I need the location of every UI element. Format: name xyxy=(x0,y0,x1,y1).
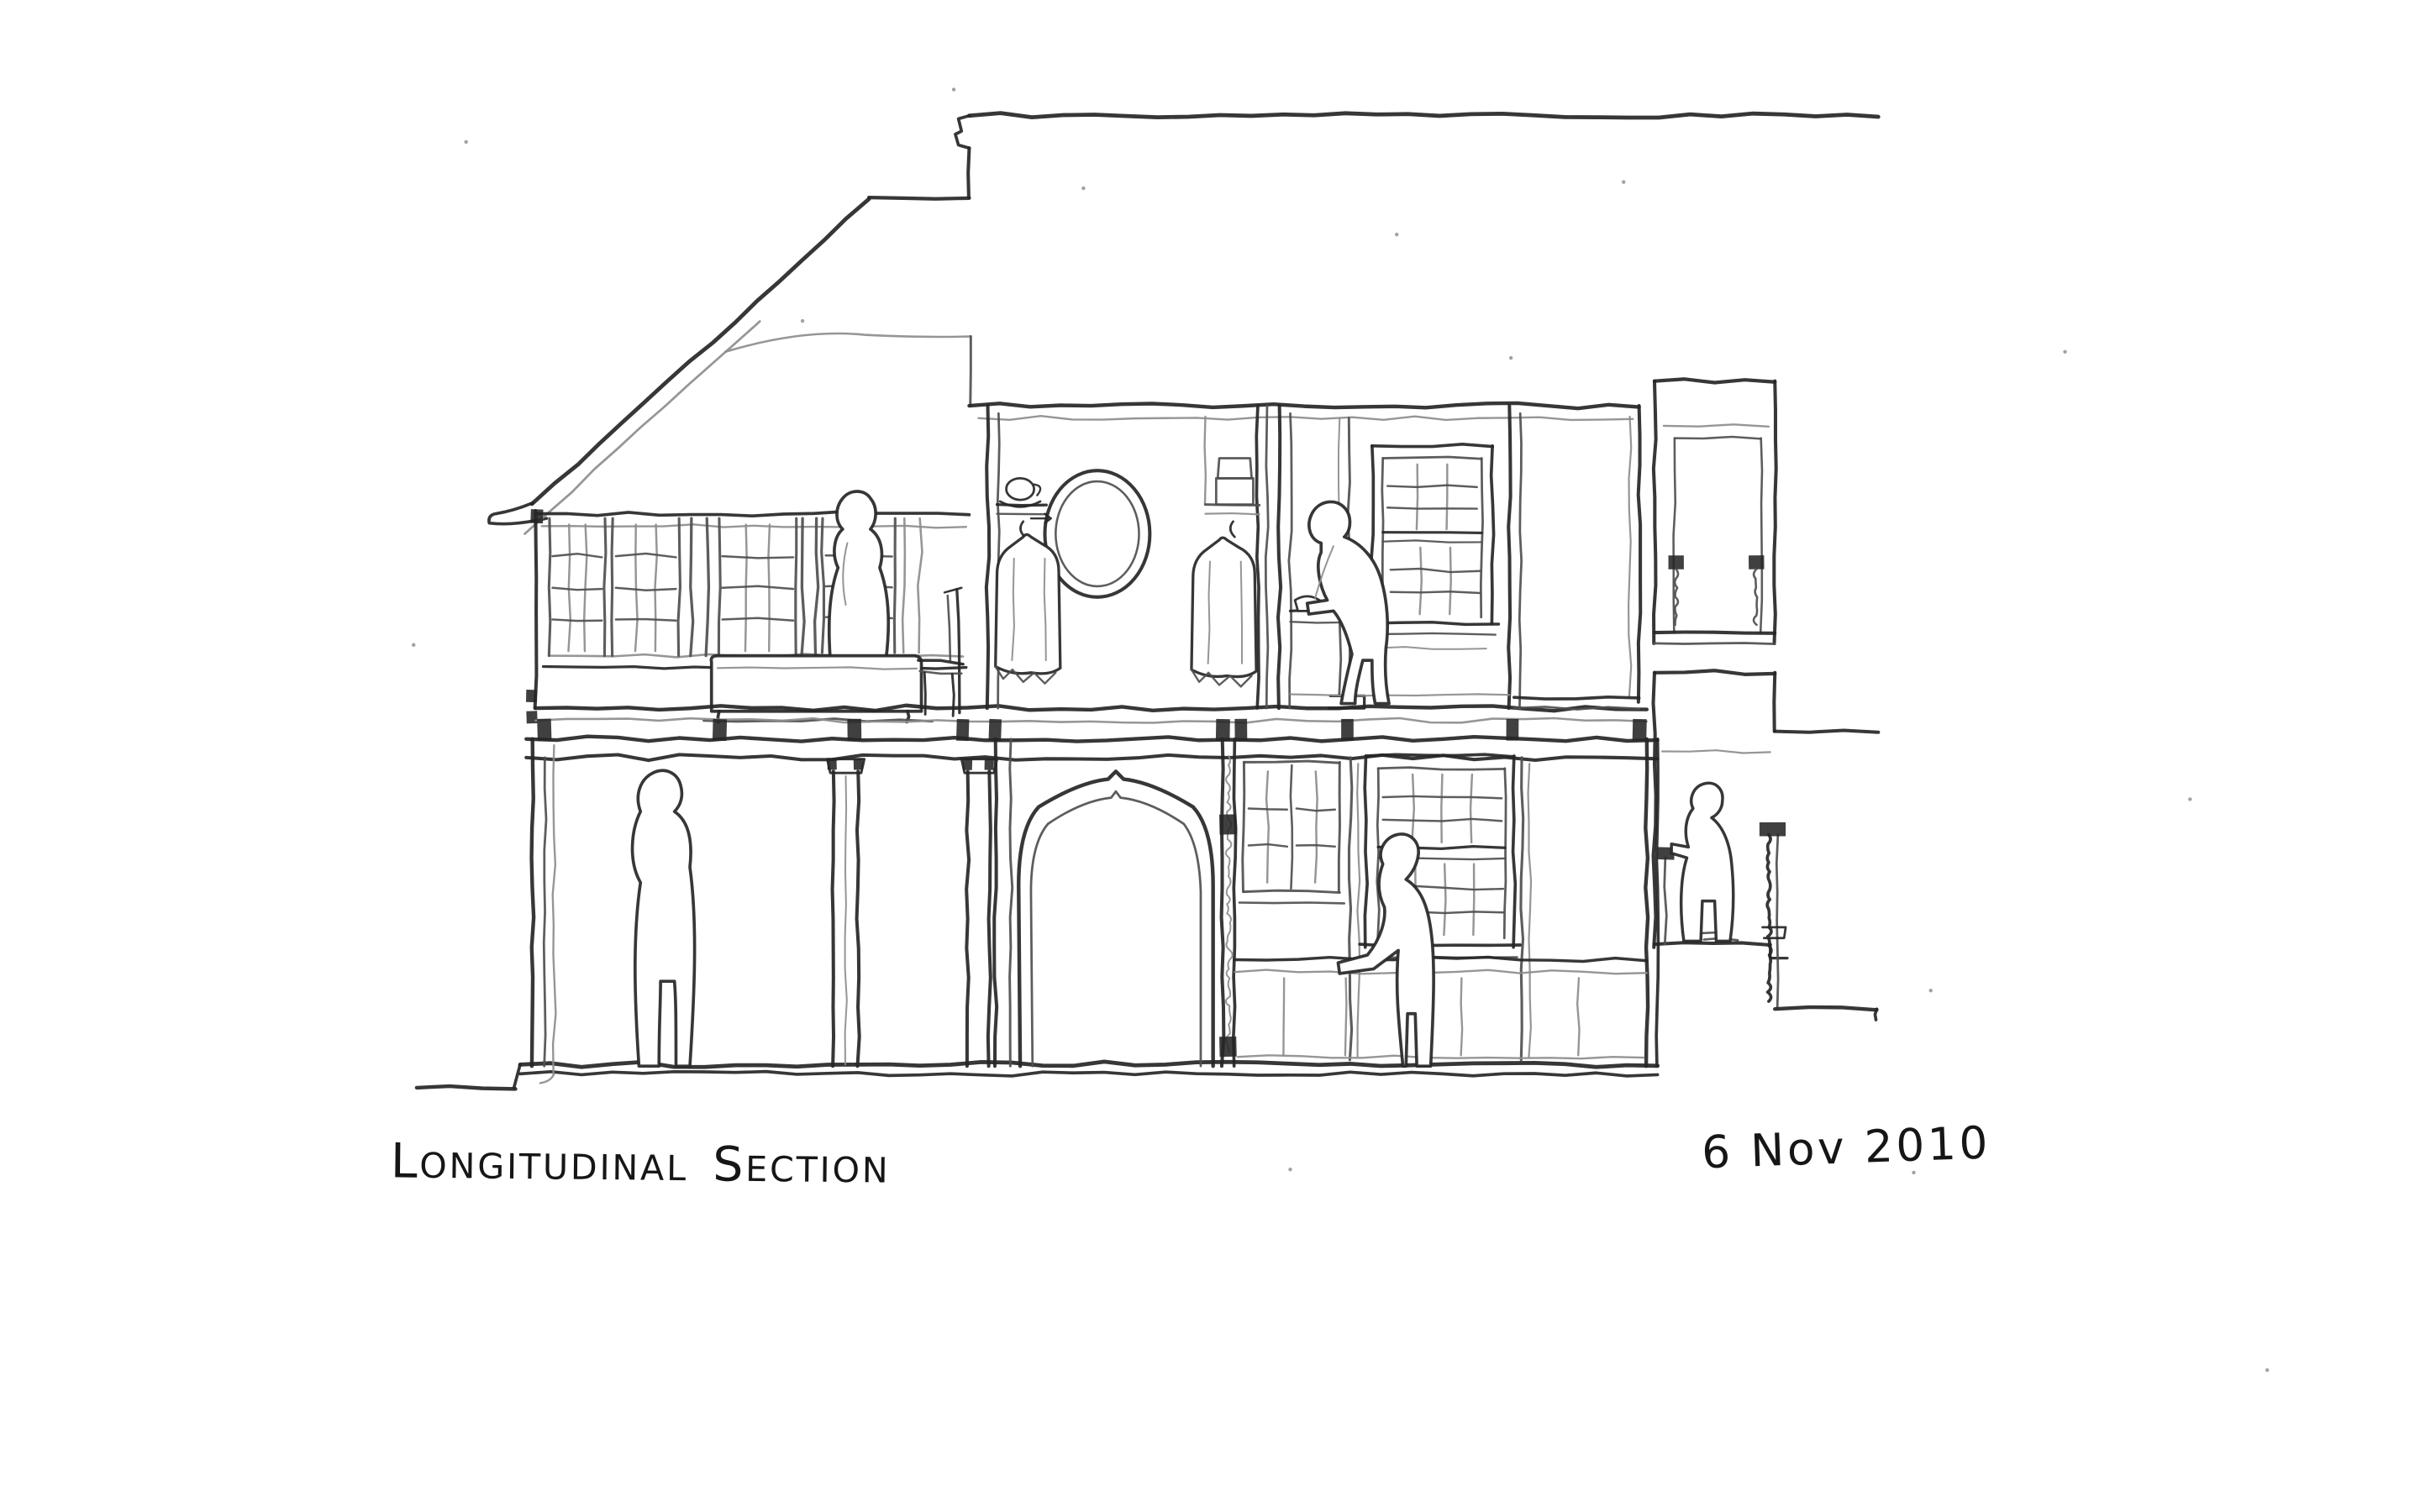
longitudinal-section-drawing: LONGITUDINALSECTION 6 Nov 2010 xyxy=(0,0,2420,1512)
drawing-date: 6 Nov 2010 xyxy=(1701,1116,1991,1179)
bed xyxy=(704,656,933,722)
sketch-sheet: LONGITUDINALSECTION 6 Nov 2010 xyxy=(0,0,2420,1512)
